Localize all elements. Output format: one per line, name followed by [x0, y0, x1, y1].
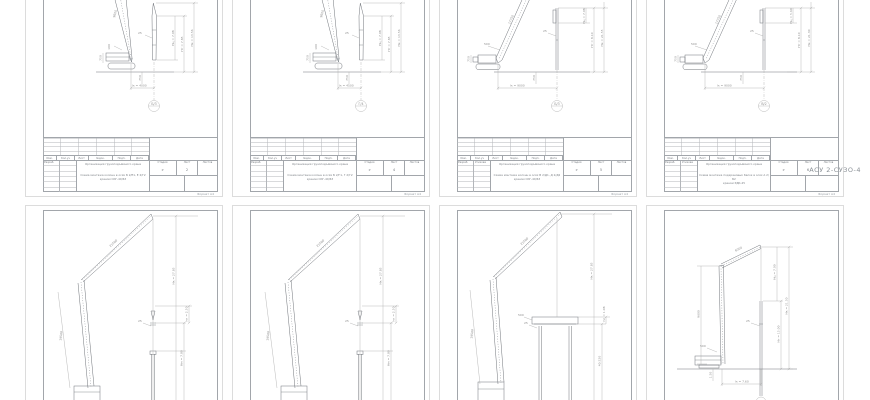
dim-label: Нт = 8.10 — [590, 32, 594, 47]
dim-label: 9600 — [112, 9, 118, 17]
format-label: Формат А4 — [818, 192, 835, 196]
dim-label: lк = 9000 — [510, 84, 525, 88]
org-line: Организация грузоподъёмного крана — [285, 162, 355, 171]
dim-label: 750 — [467, 56, 471, 62]
drawing-sheets-grid: 9600 100 750 25 lк = 4000 750 Нц = 7.08 … — [0, 0, 870, 400]
dim-label: 25 — [138, 319, 142, 323]
stage-values: Р2 — [149, 165, 218, 175]
format-label: Формат А4 — [197, 192, 214, 196]
dim-label: Нм = 7.80 — [180, 350, 184, 366]
dim-label: 100 — [314, 44, 318, 50]
dim-label: 17750 — [714, 14, 722, 24]
dim-label: 500 — [484, 42, 490, 46]
dim-label: 25 — [543, 29, 547, 33]
dim-label: lк = 7.60 — [735, 380, 749, 384]
roles-column: Разраб. Усикова — [457, 160, 491, 192]
document-code-overlay: АСУ 2-СУЗО-4 — [809, 166, 861, 174]
axis-callout: Г/4 — [358, 102, 363, 106]
dim-label: 750 — [345, 75, 349, 81]
dim-label: 19500 — [470, 329, 475, 339]
dim-label: hп = 1.08 — [602, 306, 606, 321]
crane-drawing: 21500 19500 25 Нк = 27.85 Нм = 7.80 hп =… — [26, 206, 224, 400]
dim-label: Нц = 7.00 — [773, 264, 777, 279]
stage-values: Р4 — [356, 165, 425, 175]
dim-label: Нк = 13.56 — [190, 29, 194, 46]
dim-label: Нк = 27.85 — [379, 267, 383, 284]
crane-drawing: 21500 19500 25 500 Нк = 27.85 40.520 hп … — [440, 206, 638, 400]
sheet-5[interactable]: 21500 19500 25 Нк = 27.85 Нм = 7.80 hп =… — [25, 205, 223, 400]
dim-label: Нт = 8.10 — [797, 32, 801, 47]
dim-label: 9600 — [697, 310, 701, 318]
dim-label: Нт = 15.00 — [777, 325, 781, 342]
dim-label: 25 — [345, 31, 349, 35]
format-label: Формат А4 — [611, 192, 628, 196]
dim-label: 500 — [691, 42, 697, 46]
axis-callout: Б/3 — [554, 102, 559, 106]
dim-label: 25 — [524, 321, 528, 325]
revision-grid — [250, 138, 357, 155]
org-line: Организация грузоподъёмного крана — [492, 162, 562, 171]
stage-values: Р5 — [563, 165, 632, 175]
dim-label: hп = 2.50 — [185, 306, 189, 321]
dim-label: lк = 9000 — [717, 84, 732, 88]
roles-column: Разраб. — [43, 160, 77, 192]
title-block: Изм.Кол.учЛист№док.Подп.Дата Разраб. Уси… — [664, 137, 839, 192]
dim-label: 40.520 — [598, 356, 602, 367]
dim-label: Нт = 7.85 — [387, 36, 391, 51]
dim-label: Нк = 27.85 — [172, 267, 176, 284]
title-block: Изм.Кол.учЛист№док.Подп.Дата Разраб. Уси… — [457, 137, 632, 192]
dim-label: 750 — [138, 75, 142, 81]
sheet-8[interactable]: 9600 6000 500 25 1.50 lк = 7.60 Нк = 21.… — [646, 205, 844, 400]
sheet-4[interactable]: 17750 500 750 25 lк = 9000 750 Нц = 5.60… — [646, 0, 844, 197]
sheet-title: Схема монтажа подкрановых балок в осях А… — [699, 173, 769, 191]
dim-label: 25 — [746, 319, 750, 323]
dim-label: Нк = 21.30 — [807, 29, 811, 46]
sheet-1[interactable]: 9600 100 750 25 lк = 4000 750 Нц = 7.08 … — [25, 0, 223, 197]
dim-label: 750 — [306, 55, 310, 61]
dim-label: 25 — [138, 31, 142, 35]
title-block: Изм.Кол.учЛист№док.Подп.Дата Разраб. Орг… — [43, 137, 218, 192]
revision-grid — [457, 138, 564, 155]
dim-label: Нк = 27.85 — [590, 262, 594, 279]
crane-drawing: 21500 19500 25 Нк = 27.85 Нм = 7.80 hп =… — [233, 206, 431, 400]
sheet-3[interactable]: 17750 500 750 25 lк = 9000 750 Нц = 7.08… — [439, 0, 637, 197]
dim-label: 750 — [99, 55, 103, 61]
dim-label: 9600 — [319, 9, 325, 17]
roles-column: Разраб. Усикова — [664, 160, 698, 192]
dim-label: 25 — [345, 319, 349, 323]
dim-label: 750 — [674, 56, 678, 62]
sheet-2[interactable]: 9600 100 750 25 lк = 4500 750 Нц = 7.08 … — [232, 0, 430, 197]
axis-callout: В/2 — [761, 102, 766, 106]
revision-grid — [664, 138, 771, 155]
dim-label: 500 — [518, 313, 524, 317]
dim-label: 100 — [107, 44, 111, 50]
dim-label: 500 — [700, 344, 706, 348]
dim-label: Нк = 21.55 — [600, 29, 604, 46]
crane-drawing: 9600 6000 500 25 1.50 lк = 7.60 Нк = 21.… — [647, 206, 845, 400]
sheet-6[interactable]: 21500 19500 25 Нк = 27.85 Нм = 7.80 hп =… — [232, 205, 430, 400]
org-line: Организация грузоподъёмного крана — [78, 162, 148, 171]
dim-label: hп = 2.50 — [392, 306, 396, 321]
dim-label: Нц = 5.60 — [789, 8, 793, 23]
format-label: Формат А4 — [404, 192, 421, 196]
sheet-7[interactable]: 21500 19500 25 500 Нк = 27.85 40.520 hп … — [439, 205, 637, 400]
dim-label: 750 — [532, 75, 536, 81]
title-block: Изм.Кол.учЛист№док.Подп.Дата Разраб. Орг… — [250, 137, 425, 192]
dim-label: 25 — [750, 29, 754, 33]
sheet-title: Схема монтажа колонн в осях Б 2/Е1, Е 2/… — [78, 173, 148, 191]
sheet-title: Схема монтажа колонн в осях Б 2/Г1, Г 2/… — [285, 173, 355, 191]
dim-label: Нц = 7.08 — [582, 8, 586, 23]
dim-label: Нт = 7.85 — [180, 36, 184, 51]
org-line: Организация грузоподъёмного крана — [699, 162, 769, 171]
dim-label: lк = 4500 — [339, 84, 354, 88]
dim-label: 17750 — [507, 14, 515, 24]
dim-label: Нм = 7.80 — [387, 350, 391, 366]
dim-label: 19500 — [59, 331, 64, 341]
dim-label: 19500 — [266, 331, 271, 341]
sheet-title: Схема монтажа колонн в осях В 2/Д1, Д 2/… — [492, 173, 562, 191]
roles-column: Разраб. — [250, 160, 284, 192]
dim-label: Нц = 7.08 — [378, 30, 382, 45]
dim-label: 750 — [739, 75, 743, 81]
dim-label: 6000 — [734, 246, 743, 253]
dim-label: Нк = 21.50 — [785, 297, 789, 314]
revision-grid — [43, 138, 150, 155]
dim-label: Нц = 7.08 — [171, 30, 175, 45]
dim-label: Нк = 13.56 — [397, 29, 401, 46]
dim-label: lк = 4000 — [132, 84, 147, 88]
dim-label: 1.50 — [709, 372, 713, 379]
axis-callout: Б/3 — [151, 102, 156, 106]
